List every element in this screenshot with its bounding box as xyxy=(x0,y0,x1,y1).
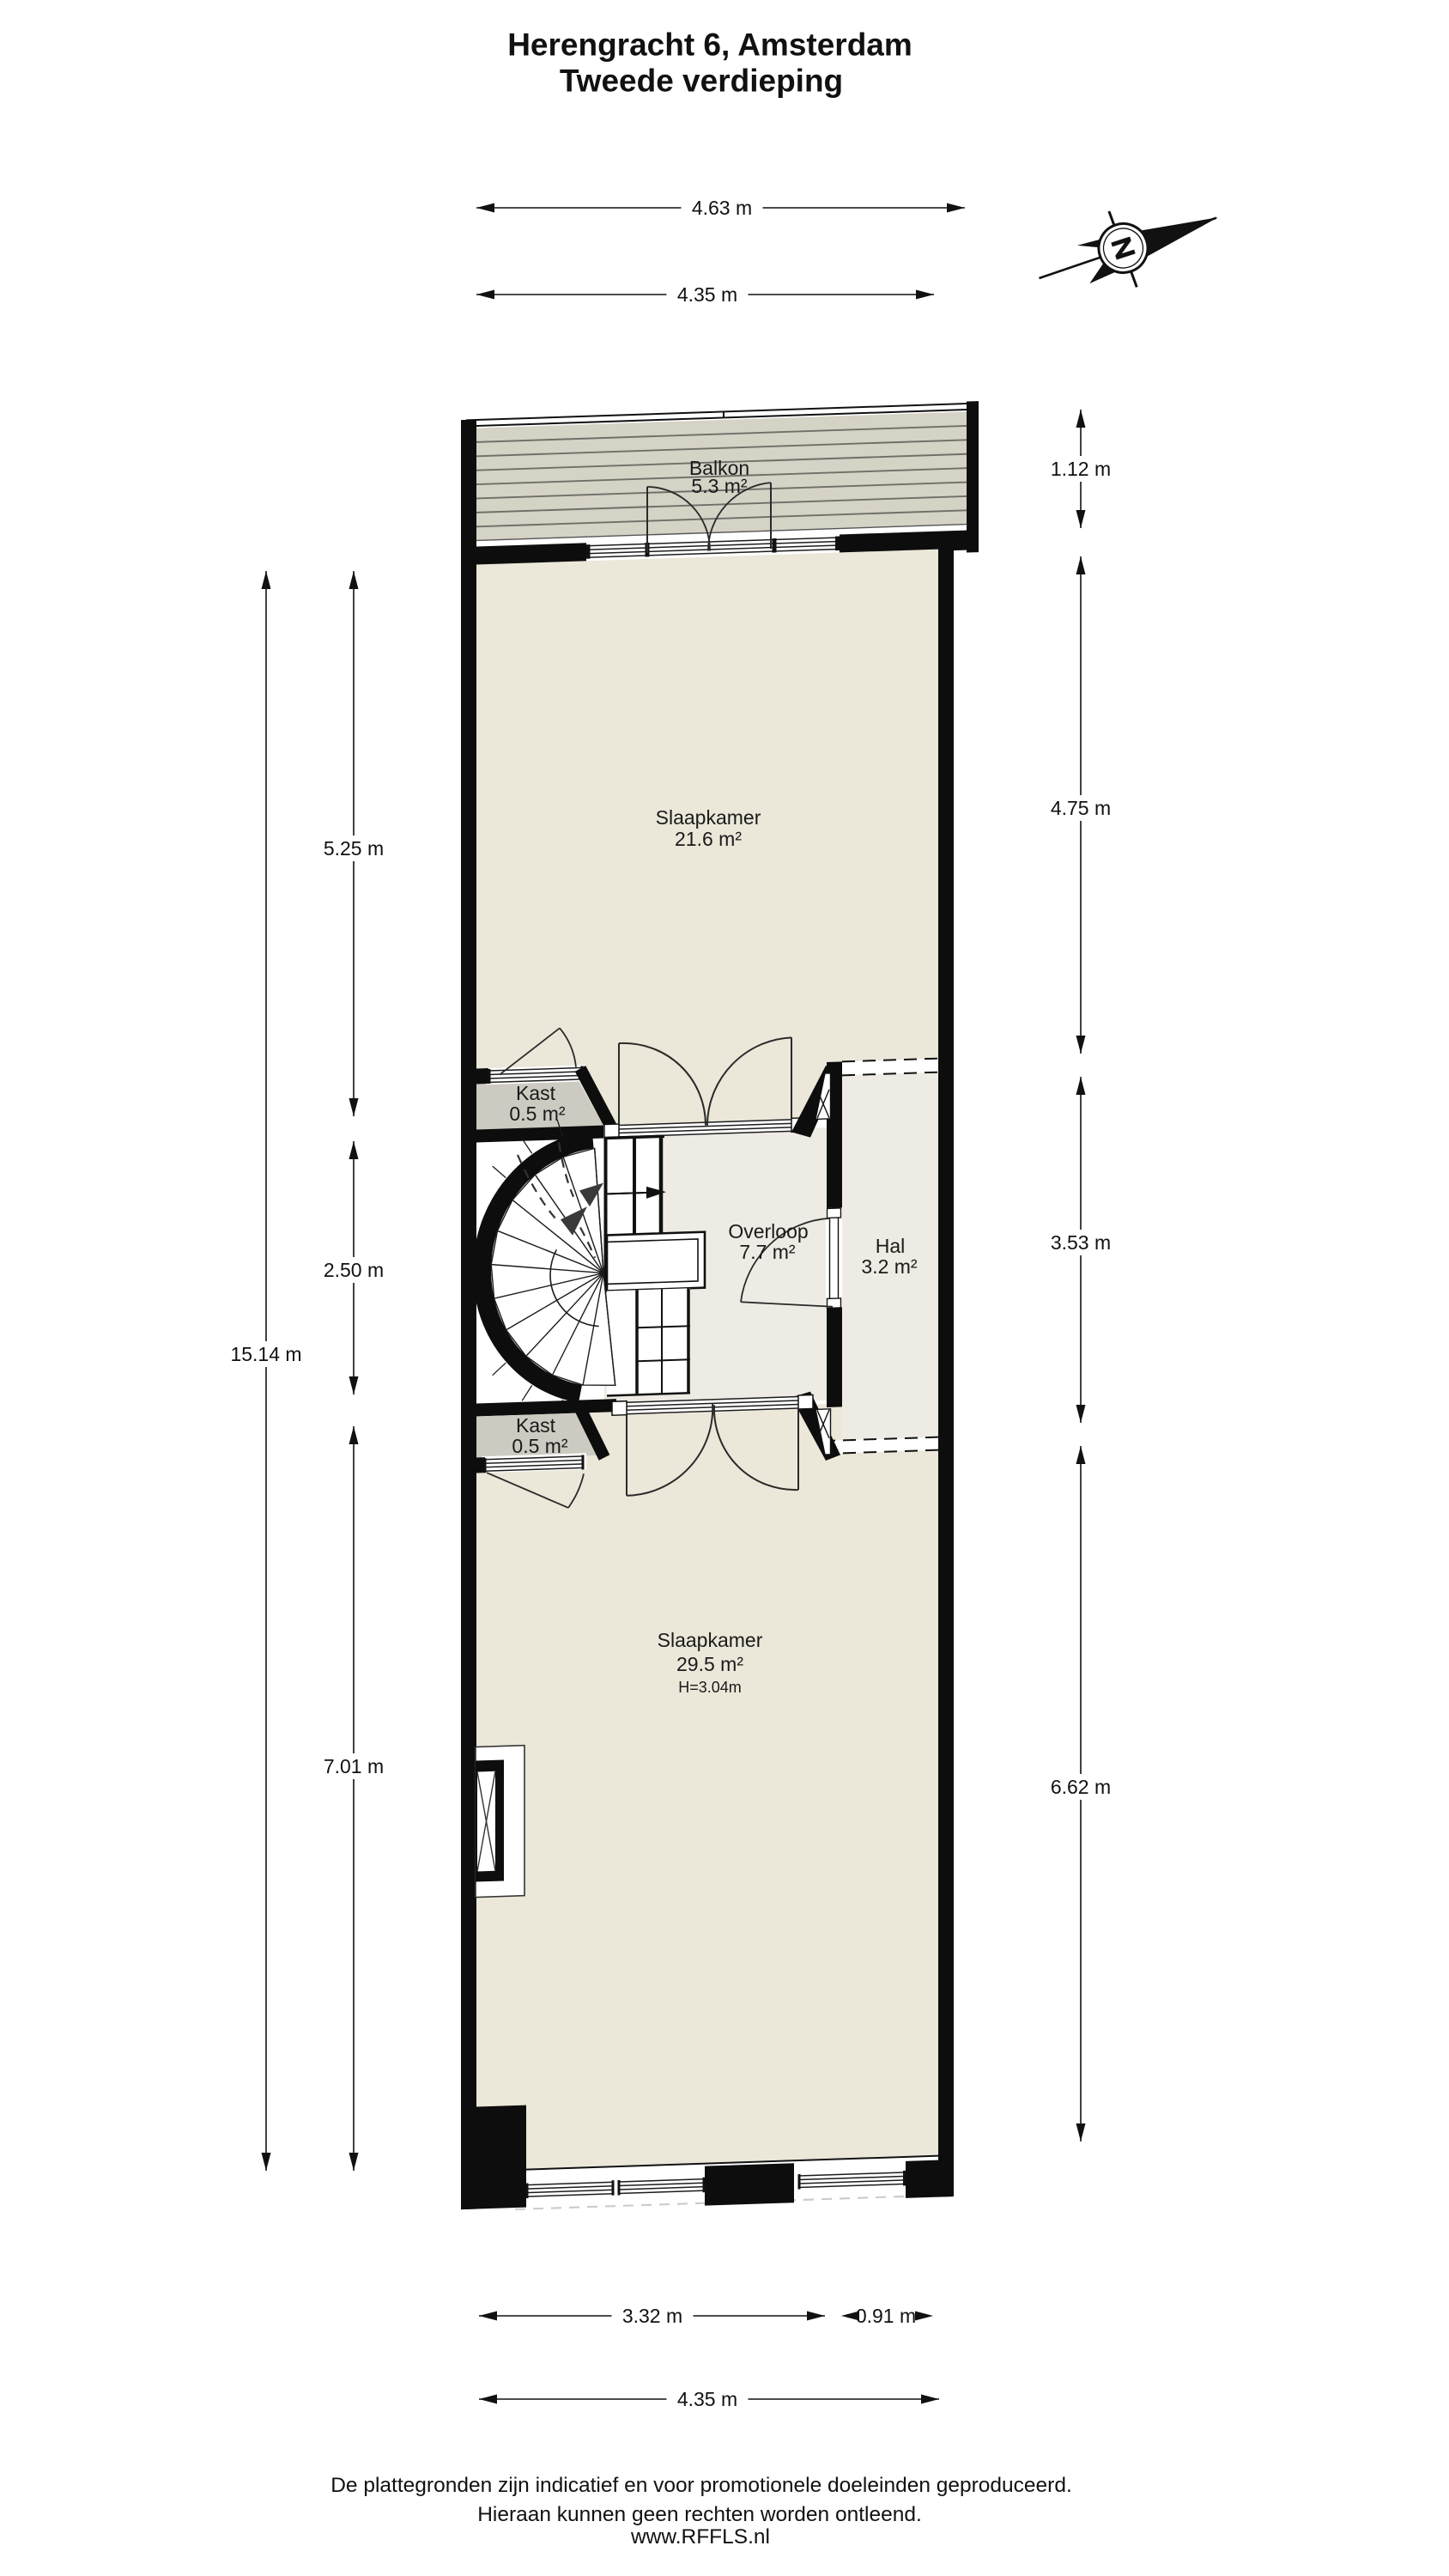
svg-text:0.91 m: 0.91 m xyxy=(856,2305,916,2327)
svg-text:5.25 m: 5.25 m xyxy=(324,837,384,860)
svg-text:1.12 m: 1.12 m xyxy=(1051,458,1111,480)
svg-text:De plattegronden zijn indicati: De plattegronden zijn indicatief en voor… xyxy=(330,2474,1072,2497)
svg-text:Kast: Kast xyxy=(516,1414,556,1437)
svg-text:5.3 m²: 5.3 m² xyxy=(691,475,748,497)
svg-text:4.63 m: 4.63 m xyxy=(692,197,752,219)
svg-text:H=3.04m: H=3.04m xyxy=(678,1679,742,1696)
svg-text:15.14 m: 15.14 m xyxy=(230,1343,301,1365)
svg-text:21.6 m²: 21.6 m² xyxy=(675,828,742,850)
svg-text:Overloop: Overloop xyxy=(728,1220,808,1242)
svg-text:Hal: Hal xyxy=(876,1235,906,1257)
svg-text:0.5 m²: 0.5 m² xyxy=(512,1435,568,1457)
svg-text:3.53 m: 3.53 m xyxy=(1051,1231,1111,1254)
svg-text:4.75 m: 4.75 m xyxy=(1051,797,1111,819)
svg-text:7.7 m²: 7.7 m² xyxy=(739,1241,796,1263)
svg-text:29.5 m²: 29.5 m² xyxy=(676,1653,743,1675)
svg-text:6.62 m: 6.62 m xyxy=(1051,1776,1111,1798)
svg-text:2.50 m: 2.50 m xyxy=(324,1259,384,1281)
svg-text:Herengracht 6, Amsterdam: Herengracht 6, Amsterdam xyxy=(507,27,912,63)
svg-text:3.2 m²: 3.2 m² xyxy=(861,1255,918,1278)
svg-text:Tweede verdieping: Tweede verdieping xyxy=(560,64,843,99)
svg-text:4.35 m: 4.35 m xyxy=(677,2388,737,2410)
svg-text:Slaapkamer: Slaapkamer xyxy=(656,806,761,829)
svg-text:7.01 m: 7.01 m xyxy=(324,1755,384,1777)
svg-text:0.5 m²: 0.5 m² xyxy=(509,1103,566,1125)
svg-text:www.RFFLS.nl: www.RFFLS.nl xyxy=(630,2525,770,2549)
svg-text:4.35 m: 4.35 m xyxy=(677,283,737,306)
svg-text:3.32 m: 3.32 m xyxy=(622,2305,682,2327)
svg-text:Hieraan kunnen geen rechten wo: Hieraan kunnen geen rechten worden ontle… xyxy=(477,2503,922,2526)
svg-text:Slaapkamer: Slaapkamer xyxy=(658,1629,763,1651)
svg-text:Kast: Kast xyxy=(516,1082,556,1104)
